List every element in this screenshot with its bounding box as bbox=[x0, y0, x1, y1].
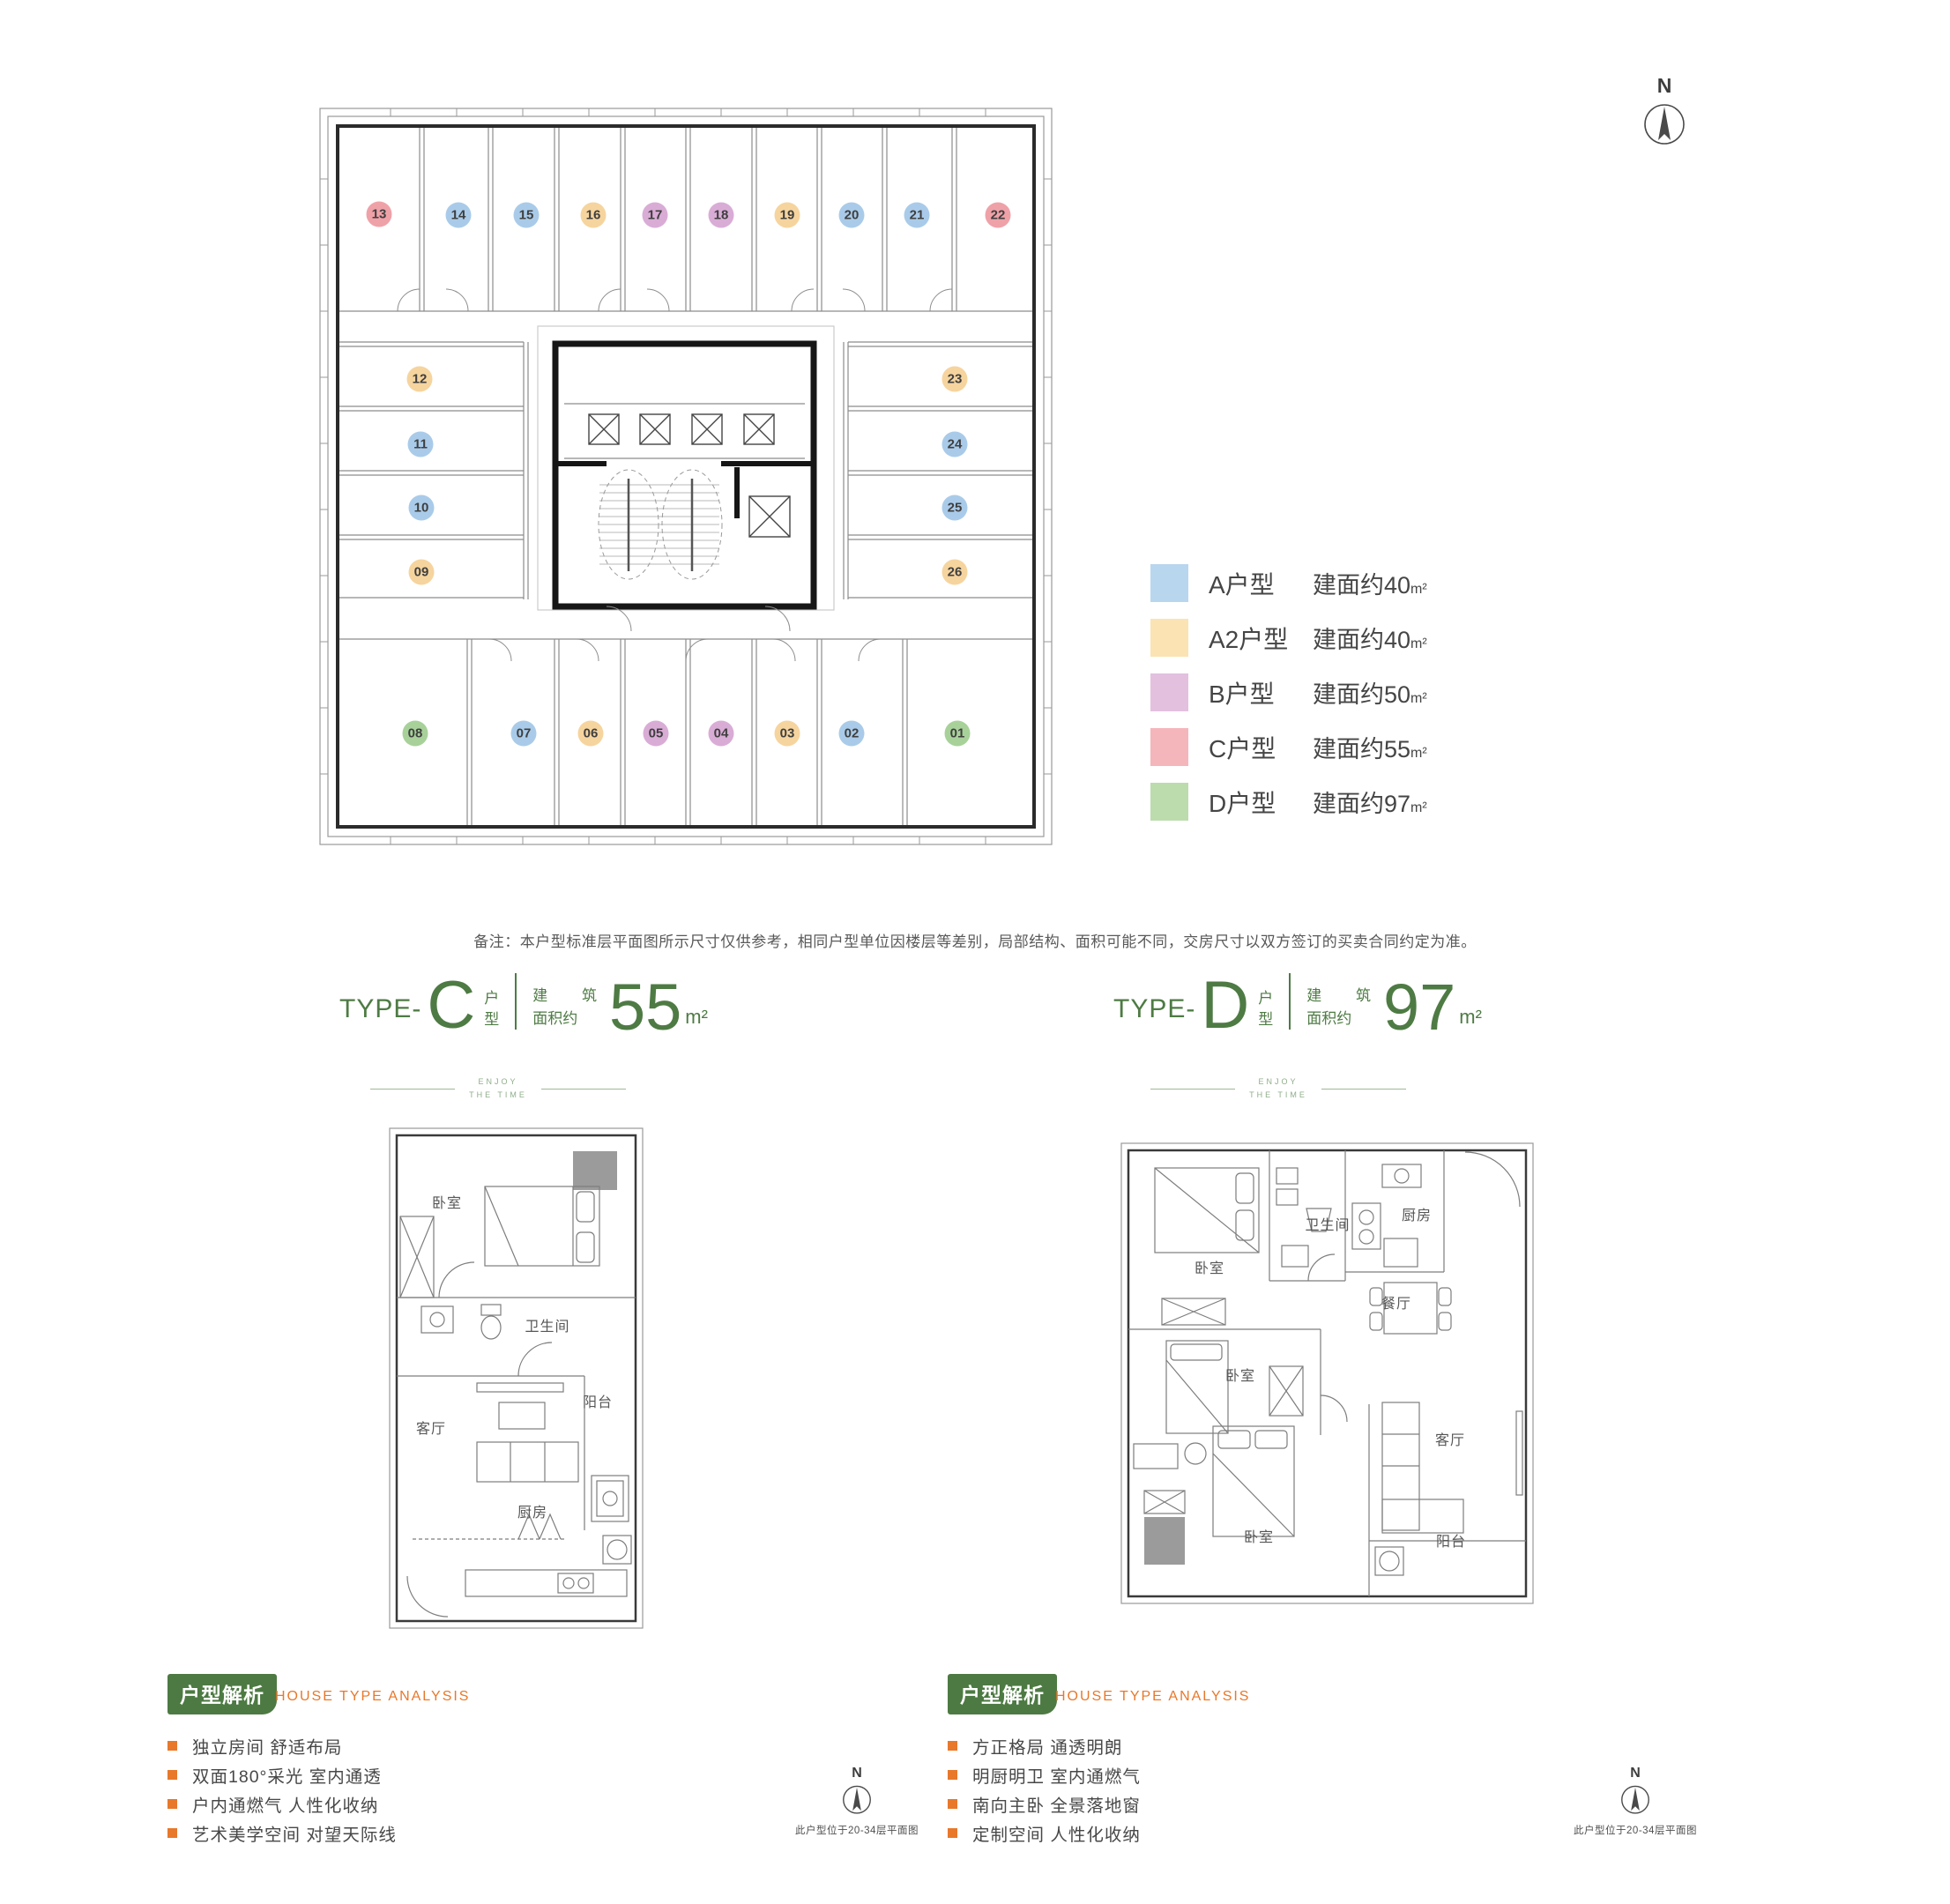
tagline-divider: ENJOYTHE TIME bbox=[1137, 1075, 1419, 1103]
compass-n-label: N bbox=[1622, 74, 1707, 98]
bullet-square-icon bbox=[167, 1828, 177, 1838]
area-unit: m² bbox=[685, 1006, 708, 1033]
legend-type-label: A户型 bbox=[1209, 566, 1313, 601]
compass-north-d: N 此户型位于20-34层平面图 bbox=[1552, 1766, 1719, 1837]
area-value: 97 bbox=[1383, 981, 1455, 1033]
analysis-bullet: 艺术美学空间 对望天际线 bbox=[167, 1818, 397, 1848]
floor-plan-linework bbox=[316, 104, 1056, 849]
header-divider bbox=[515, 973, 517, 1030]
compass-icon bbox=[841, 1783, 873, 1815]
analysis-bullet: 双面180°采光 室内通透 bbox=[167, 1760, 397, 1789]
type-hz: 户型 bbox=[1258, 988, 1273, 1033]
analysis-title-badge: 户型解析 bbox=[948, 1674, 1057, 1714]
bullet-square-icon bbox=[167, 1741, 177, 1751]
bullet-square-icon bbox=[948, 1770, 957, 1780]
type-letter: D bbox=[1201, 978, 1249, 1033]
legend-row: A2户型 建面约40m² bbox=[1150, 619, 1427, 657]
type-d-floor-plan bbox=[1118, 1140, 1537, 1607]
legend-color-swatch bbox=[1150, 783, 1188, 821]
legend-area-label: 建面约97m² bbox=[1313, 785, 1427, 819]
unit-type-legend: A户型 建面约40m² A2户型 建面约40m² B户型 建面约50m² C户型… bbox=[1150, 564, 1427, 837]
legend-row: B户型 建面约50m² bbox=[1150, 673, 1427, 711]
legend-row: A户型 建面约40m² bbox=[1150, 564, 1427, 602]
bullet-square-icon bbox=[948, 1741, 957, 1751]
divider-line bbox=[1150, 1089, 1235, 1090]
legend-type-label: B户型 bbox=[1209, 675, 1313, 710]
divider-line bbox=[370, 1089, 455, 1090]
tagline-text: ENJOYTHE TIME bbox=[469, 1075, 527, 1103]
legend-row: C户型 建面约55m² bbox=[1150, 728, 1427, 766]
disclaimer-note: 备注：本户型标准层平面图所示尺寸仅供参考，相同户型单位因楼层等差别，局部结构、面… bbox=[0, 929, 1950, 951]
analysis-bullet: 方正格局 通透明朗 bbox=[948, 1731, 1141, 1760]
bullet-square-icon bbox=[167, 1770, 177, 1780]
legend-area-label: 建面约55m² bbox=[1313, 730, 1427, 764]
area-words: 建 筑面积约 bbox=[532, 985, 597, 1033]
type-d-linework bbox=[1118, 1140, 1537, 1607]
bullet-square-icon bbox=[948, 1828, 957, 1838]
header-divider bbox=[1289, 973, 1291, 1030]
bullet-square-icon bbox=[167, 1799, 177, 1809]
bullet-square-icon bbox=[948, 1799, 957, 1809]
divider-line bbox=[541, 1089, 626, 1090]
floor-location-note: 此户型位于20-34层平面图 bbox=[1552, 1823, 1719, 1837]
analysis-bullets: 独立房间 舒适布局 双面180°采光 室内通透 户内通燃气 人性化收纳 艺术美学… bbox=[167, 1731, 397, 1848]
tagline-text: ENJOYTHE TIME bbox=[1249, 1075, 1307, 1103]
type-prefix: TYPE- bbox=[1113, 994, 1195, 1033]
analysis-bullet: 定制空间 人性化收纳 bbox=[948, 1818, 1141, 1848]
legend-color-swatch bbox=[1150, 728, 1188, 766]
compass-icon bbox=[1641, 100, 1687, 146]
divider-line bbox=[1321, 1089, 1406, 1090]
legend-area-label: 建面约40m² bbox=[1313, 566, 1427, 600]
legend-color-swatch bbox=[1150, 564, 1188, 602]
brochure-page: 01 02 03 04 05 06 07 08 09 10 11 12 bbox=[0, 0, 1950, 1904]
analysis-bullet: 明厨明卫 室内通燃气 bbox=[948, 1760, 1141, 1789]
type-prefix: TYPE- bbox=[339, 994, 421, 1033]
legend-color-swatch bbox=[1150, 673, 1188, 711]
compass-icon bbox=[1619, 1783, 1651, 1815]
floor-location-note: 此户型位于20-34层平面图 bbox=[773, 1823, 941, 1837]
type-letter: C bbox=[427, 978, 475, 1033]
legend-type-label: A2户型 bbox=[1209, 621, 1313, 656]
area-unit: m² bbox=[1459, 1006, 1482, 1033]
legend-type-label: D户型 bbox=[1209, 785, 1313, 820]
analysis-bullet: 独立房间 舒适布局 bbox=[167, 1731, 397, 1760]
compass-north: N bbox=[1622, 74, 1707, 146]
analysis-bullets: 方正格局 通透明朗 明厨明卫 室内通燃气 南向主卧 全景落地窗 定制空间 人性化… bbox=[948, 1731, 1141, 1848]
legend-row: D户型 建面约97m² bbox=[1150, 783, 1427, 821]
standard-floor-plan: 01 02 03 04 05 06 07 08 09 10 11 12 bbox=[316, 104, 1056, 849]
analysis-bullet: 南向主卧 全景落地窗 bbox=[948, 1789, 1141, 1818]
legend-color-swatch bbox=[1150, 619, 1188, 657]
compass-north-c: N 此户型位于20-34层平面图 bbox=[773, 1766, 941, 1837]
type-hz: 户型 bbox=[484, 988, 499, 1033]
type-c-header: TYPE- C 户型 建 筑面积约 55 m² bbox=[339, 973, 708, 1033]
area-words: 建 筑面积约 bbox=[1306, 985, 1371, 1033]
type-c-floor-plan bbox=[386, 1125, 646, 1632]
type-c-linework bbox=[386, 1125, 646, 1632]
tagline-divider: ENJOYTHE TIME bbox=[357, 1075, 639, 1103]
legend-type-label: C户型 bbox=[1209, 730, 1313, 765]
analysis-title-badge: 户型解析 bbox=[167, 1674, 277, 1714]
analysis-bullet: 户内通燃气 人性化收纳 bbox=[167, 1789, 397, 1818]
analysis-subtitle: HOUSE TYPE ANALYSIS bbox=[1055, 1689, 1250, 1705]
type-d-header: TYPE- D 户型 建 筑面积约 97 m² bbox=[1113, 973, 1482, 1033]
analysis-subtitle: HOUSE TYPE ANALYSIS bbox=[275, 1689, 470, 1705]
legend-area-label: 建面约50m² bbox=[1313, 675, 1427, 710]
area-value: 55 bbox=[609, 981, 681, 1033]
legend-area-label: 建面约40m² bbox=[1313, 621, 1427, 655]
